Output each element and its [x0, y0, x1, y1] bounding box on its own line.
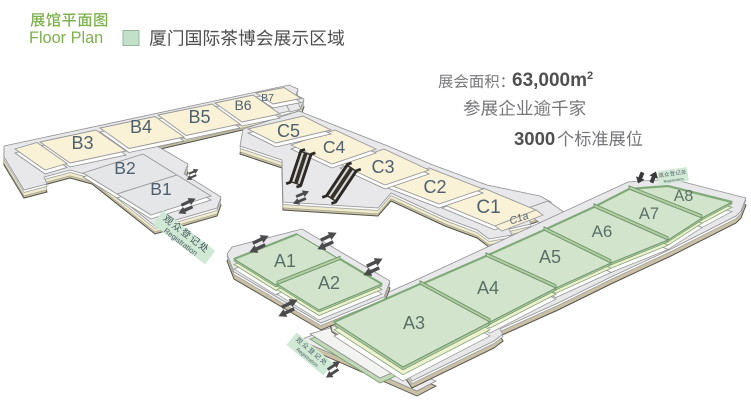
svg-text:63,000m2: 63,000m2 [512, 70, 593, 91]
svg-text:A2: A2 [318, 273, 340, 293]
svg-text:B2: B2 [114, 158, 135, 178]
svg-text:C1: C1 [476, 197, 500, 218]
svg-text:A1: A1 [274, 251, 296, 271]
svg-text:B5: B5 [188, 107, 210, 127]
svg-text:3000: 3000 [514, 128, 555, 149]
svg-text:C2: C2 [423, 177, 446, 197]
svg-text:Floor Plan: Floor Plan [29, 29, 103, 47]
svg-text:C3: C3 [371, 157, 394, 177]
svg-text:A3: A3 [403, 313, 425, 333]
svg-text:A7: A7 [639, 205, 659, 223]
svg-text:B6: B6 [234, 97, 251, 113]
svg-text:A8: A8 [674, 188, 694, 205]
svg-text:C4: C4 [323, 137, 346, 157]
svg-text:C5: C5 [277, 121, 300, 141]
svg-text:B4: B4 [130, 117, 152, 137]
svg-text:B1: B1 [150, 179, 171, 199]
svg-text:A6: A6 [592, 222, 613, 241]
svg-text:A5: A5 [539, 247, 561, 267]
svg-text:A4: A4 [477, 278, 499, 298]
svg-text:B3: B3 [71, 133, 93, 153]
svg-text:B7: B7 [261, 92, 274, 104]
